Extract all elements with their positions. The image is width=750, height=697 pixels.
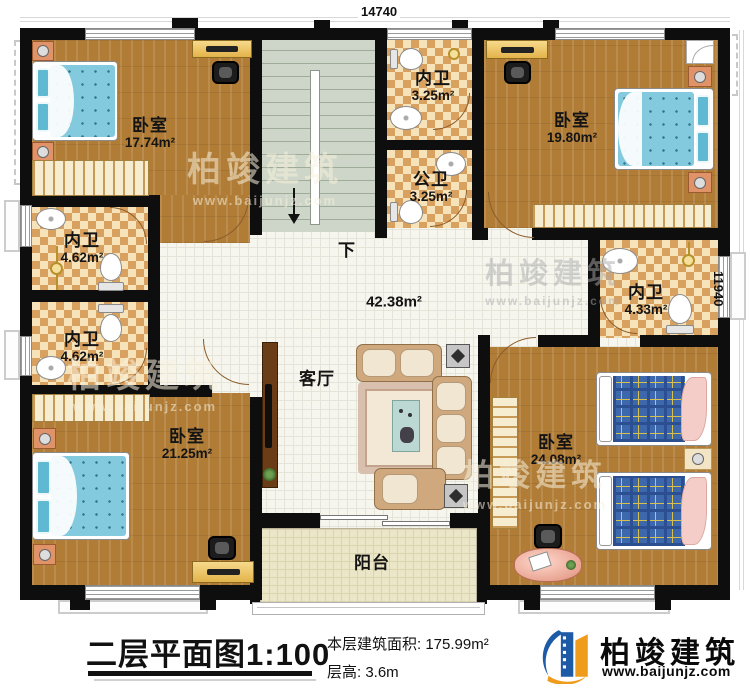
- office-chair: [504, 61, 531, 84]
- window-sill: [730, 252, 746, 320]
- room-area: 21.25m²: [162, 446, 212, 461]
- window-sill: [518, 600, 670, 614]
- wardrobe: [532, 204, 712, 228]
- window: [387, 28, 472, 40]
- pillow: [36, 460, 51, 495]
- label-bedroom-top-right: 卧室 19.80m²: [547, 111, 597, 145]
- stair-arrow-head-icon: [288, 214, 300, 224]
- dimension-top: 14740: [358, 4, 400, 19]
- knob: [692, 453, 704, 465]
- pillow: [36, 68, 50, 98]
- tv: [265, 384, 272, 448]
- label-bath-public: 公卫 3.25m²: [410, 170, 453, 204]
- room-area: 3.25m²: [410, 189, 453, 204]
- label-bath-top: 内卫 3.25m²: [412, 69, 455, 103]
- brand-website-text: www.baijunjz.com: [602, 663, 731, 679]
- window: [85, 585, 200, 600]
- keyboard-icon: [207, 569, 240, 575]
- blanket-fold: [681, 477, 707, 545]
- room-name: 客厅: [299, 369, 335, 388]
- double-bed: [32, 452, 130, 540]
- dimension-width-value: 14740: [361, 4, 397, 19]
- railing-line: [257, 607, 480, 608]
- wall: [375, 40, 387, 238]
- blanket: [613, 376, 685, 442]
- room-name: 公卫: [410, 170, 453, 189]
- label-bath-left-upper: 内卫 4.62m²: [61, 231, 104, 265]
- nightstand: [32, 41, 54, 61]
- room-area: 3.25m²: [412, 88, 455, 103]
- brand-logo-icon: [536, 626, 594, 684]
- chair-seat: [215, 542, 229, 554]
- wall: [588, 240, 600, 347]
- room-area: 4.62m²: [61, 349, 104, 364]
- knob: [39, 549, 51, 561]
- window-sill: [4, 330, 20, 380]
- floor-height-value: 层高: 3.6m: [327, 664, 399, 681]
- label-bedroom-top-left: 卧室 17.74m²: [125, 116, 175, 150]
- nightstand: [33, 544, 56, 565]
- room-area: 17.74m²: [125, 135, 175, 150]
- knob: [694, 177, 706, 189]
- wall: [387, 140, 472, 150]
- keyboard-icon: [206, 46, 238, 52]
- nightstand: [688, 172, 712, 193]
- sofa-cushion: [362, 349, 396, 377]
- facade-pier: [172, 18, 198, 28]
- desk: [486, 40, 548, 59]
- toilet-tank: [98, 282, 124, 291]
- knob: [37, 146, 49, 158]
- speaker: [446, 344, 470, 368]
- keyboard-icon: [501, 47, 534, 53]
- room-name: 内卫: [61, 231, 104, 250]
- room-name: 卧室: [125, 116, 175, 135]
- down-text: 下: [338, 241, 355, 260]
- room-area: 42.38m²: [366, 294, 422, 311]
- pillow: [599, 476, 612, 546]
- label-bedroom-bottom-left: 卧室 21.25m²: [162, 427, 212, 461]
- plan-title: 二层平面图1:100: [86, 629, 330, 674]
- desk: [192, 561, 254, 583]
- balcony-railing: [252, 602, 485, 615]
- knob: [39, 433, 51, 445]
- window: [540, 585, 655, 600]
- room-area: 4.33m²: [625, 302, 668, 317]
- flower-icon: [566, 560, 576, 570]
- wall: [20, 28, 32, 600]
- chair-seat: [219, 67, 232, 78]
- wall: [477, 528, 487, 604]
- towel-ring: [448, 48, 460, 60]
- sink: [602, 248, 638, 274]
- room-area: 24.08m²: [531, 452, 581, 467]
- wall: [532, 228, 730, 240]
- bed-sheet: [618, 92, 642, 166]
- floor-area-value: 本层建筑面积: 175.99m²: [327, 636, 489, 653]
- chair-seat: [511, 67, 524, 78]
- toilet-tank: [390, 202, 398, 222]
- table-decor: [408, 413, 412, 417]
- speaker-cone: [451, 349, 465, 363]
- wardrobe: [492, 397, 518, 529]
- pillow: [36, 499, 51, 534]
- window: [85, 28, 195, 40]
- double-bed: [614, 88, 714, 170]
- wardrobe: [32, 394, 150, 422]
- label-bath-right: 内卫 4.33m²: [625, 283, 668, 317]
- table-decor: [399, 409, 403, 413]
- dimension-right: 11940: [711, 268, 726, 309]
- label-bedroom-bottom-right: 卧室 24.08m²: [531, 433, 581, 467]
- room-area: 4.62m²: [61, 250, 104, 265]
- knob: [694, 71, 706, 83]
- pillow: [599, 376, 612, 442]
- desk: [192, 40, 252, 58]
- room-name: 卧室: [162, 427, 212, 446]
- towel-ring: [682, 254, 695, 267]
- nightstand: [32, 142, 54, 162]
- label-balcony: 阳台: [354, 553, 390, 572]
- twin-bed: [596, 372, 712, 446]
- label-stairs-down: 下: [338, 236, 355, 261]
- sofa-cushion: [436, 382, 466, 411]
- label-living-room: 客厅: [299, 369, 335, 388]
- table-flowers: [400, 427, 414, 443]
- wardrobe: [32, 160, 149, 196]
- title-underline: [88, 671, 312, 676]
- sink: [390, 106, 422, 130]
- sliding-door: [382, 521, 450, 526]
- sofa-cushion: [436, 414, 466, 443]
- blanket-fold: [681, 377, 707, 441]
- plan-scale: 1:100: [246, 637, 330, 672]
- facade-pier: [543, 20, 559, 28]
- wall: [20, 290, 160, 302]
- floor-height-text: 层高: 3.6m: [327, 661, 399, 682]
- office-chair: [212, 61, 239, 84]
- wall: [472, 40, 484, 240]
- pillow: [36, 102, 50, 132]
- wall: [20, 195, 160, 207]
- title-underline-shadow: [94, 679, 316, 681]
- knob: [37, 45, 49, 57]
- window: [555, 28, 665, 40]
- brand-website: www.baijunjz.com: [602, 663, 731, 679]
- speaker-cone: [449, 489, 463, 503]
- room-name: 卧室: [547, 111, 597, 130]
- office-chair: [534, 524, 562, 549]
- toilet-bowl: [668, 294, 692, 324]
- toilet-tank: [390, 49, 398, 69]
- toilet-tank: [98, 304, 124, 313]
- coffee-table: [392, 400, 420, 452]
- wall: [148, 195, 160, 397]
- stair-direction-arrow: [293, 188, 295, 216]
- nightstand: [684, 448, 712, 470]
- window-sill: [4, 200, 20, 252]
- facade-pier: [655, 598, 671, 610]
- label-bath-left-lower: 内卫 4.62m²: [61, 330, 104, 364]
- room-name: 内卫: [412, 69, 455, 88]
- shower-corner: [686, 40, 714, 64]
- blanket: [613, 476, 685, 546]
- wall: [250, 40, 262, 235]
- nightstand: [688, 66, 712, 87]
- plan-title-text: 二层平面图: [86, 637, 246, 672]
- office-chair: [208, 536, 236, 560]
- window: [20, 205, 32, 247]
- label-hall-area: 42.38m²: [366, 295, 422, 312]
- chair-seat: [541, 530, 555, 543]
- dimension-height-value: 11940: [711, 271, 726, 306]
- facade-pier: [314, 20, 330, 28]
- toilet-tank: [666, 325, 694, 334]
- pillow: [696, 95, 710, 127]
- logo-svg: [536, 626, 594, 684]
- facade-pier: [524, 598, 540, 610]
- room-name: 阳台: [354, 553, 390, 572]
- nightstand: [33, 428, 56, 449]
- sofa-cushion: [400, 349, 434, 377]
- room-name: 卧室: [531, 433, 581, 452]
- facade-pier: [200, 598, 216, 610]
- toilet-bowl: [399, 48, 423, 70]
- sink: [36, 208, 66, 230]
- plant-icon: [263, 468, 276, 481]
- room-area: 19.80m²: [547, 130, 597, 145]
- room-name: 内卫: [61, 330, 104, 349]
- floor-area-text: 本层建筑面积: 175.99m²: [327, 633, 489, 654]
- toilet: [666, 294, 694, 334]
- speaker: [444, 484, 468, 508]
- twin-bed: [596, 472, 712, 550]
- window: [20, 336, 32, 376]
- room-name: 内卫: [625, 283, 668, 302]
- shower-curve: [692, 45, 713, 63]
- stair-railing: [310, 70, 320, 225]
- floor-plan-canvas: 卧室 17.74m² 卧室 19.80m² 卧室 21.25m² 卧室 24.0…: [0, 0, 750, 697]
- wall: [640, 335, 730, 347]
- pillow: [696, 131, 710, 163]
- facade-pier: [452, 20, 468, 28]
- double-bed: [32, 61, 118, 141]
- sofa-cushion: [382, 474, 418, 504]
- sliding-door: [320, 515, 388, 520]
